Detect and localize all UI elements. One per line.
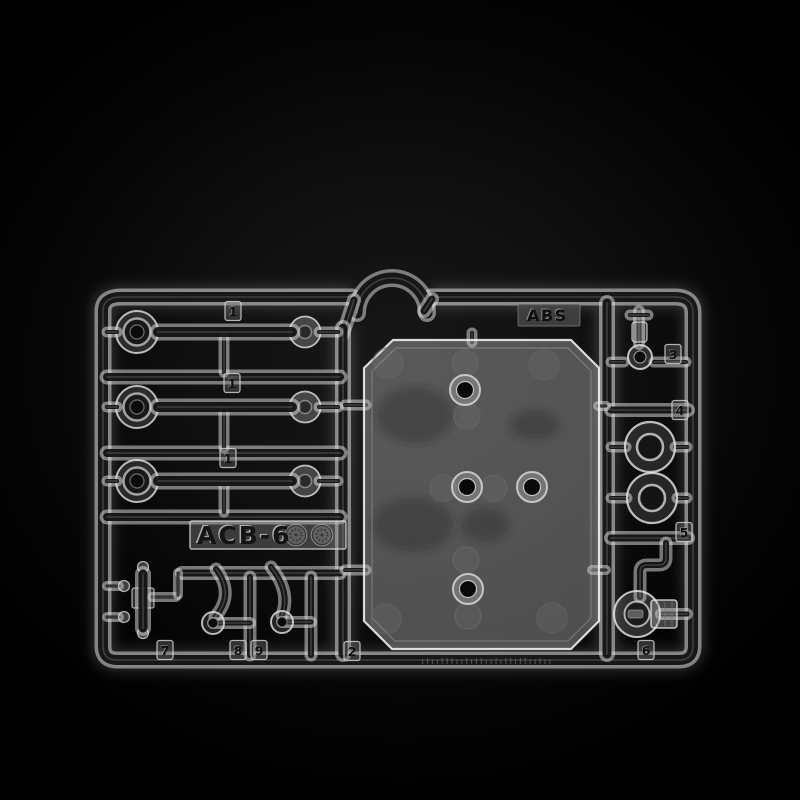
- plate-shallow-recess: [454, 403, 480, 429]
- part-number: 1: [224, 451, 233, 466]
- runner-core: [357, 278, 427, 313]
- part6-cylinder: [651, 600, 677, 628]
- part6-elbow-runner: [640, 543, 666, 597]
- part-number-tab-4: 44: [672, 401, 688, 420]
- plate-corner-recess: [373, 348, 403, 378]
- sprue-photo: 1111112233445566778899 ACB-6 ACB-6 ABS A…: [0, 0, 800, 800]
- plate-hole: [460, 581, 477, 598]
- part6-pin: [628, 610, 643, 618]
- part-9-ring: [271, 611, 293, 633]
- part-number-tab-1: 11: [225, 302, 241, 321]
- smudge: [461, 508, 509, 542]
- plate-shallow-recess: [452, 350, 478, 376]
- part-number: 7: [161, 643, 170, 658]
- arm-socket-hole: [130, 325, 144, 339]
- ring-hole: [208, 618, 218, 628]
- part-6-cylinder-joint: [614, 591, 677, 637]
- plate-hole: [459, 479, 476, 496]
- plate-hole: [457, 382, 474, 399]
- kit-code-text: ACB-6: [197, 521, 292, 550]
- molded-recycle-symbol-center: [295, 534, 298, 537]
- plate-corner-recess: [371, 604, 401, 634]
- part-number-tab-8: 88: [230, 641, 246, 660]
- part-number-tab-9: 99: [251, 641, 267, 660]
- part-number: 8: [234, 643, 243, 658]
- part7-knob: [119, 612, 130, 623]
- sprue-shapes: 1111112233445566778899: [103, 278, 693, 661]
- smudge: [373, 498, 453, 552]
- part3-body: [632, 322, 647, 342]
- arm-socket-hole: [130, 474, 144, 488]
- part-number: 5: [680, 525, 689, 540]
- plate-hole: [524, 479, 541, 496]
- plate-shallow-recess: [453, 547, 479, 573]
- part-number: 1: [228, 376, 237, 391]
- plate-corner-recess: [529, 350, 559, 380]
- part-ring-socket-4: [625, 422, 675, 472]
- ring-inner: [637, 434, 663, 460]
- plate-shallow-recess: [481, 475, 507, 501]
- photo-of-model-kit-runner: 1111112233445566778899 ACB-6 ACB-6 ABS A…: [0, 0, 800, 800]
- arch-clip-part: [357, 278, 427, 313]
- part7-knob: [119, 581, 130, 592]
- part-ring-socket-5: [627, 473, 677, 523]
- part-number-tab-7: 77: [157, 641, 173, 660]
- part3-ring-hole: [634, 351, 646, 363]
- part-number: 2: [348, 644, 357, 659]
- ring-inner: [639, 485, 665, 511]
- part8-curved-arm: [215, 569, 225, 617]
- material-marking: ABS: [527, 306, 568, 325]
- part9-curved-arm: [271, 567, 285, 615]
- arm-socket-hole: [130, 400, 144, 414]
- part-number-tab-5: 55: [676, 523, 692, 542]
- arch-right-link: [424, 299, 432, 311]
- molded-recycle-symbol-center: [321, 534, 324, 537]
- part-number-tab-2: 22: [344, 642, 360, 661]
- base-plate-part: [364, 340, 599, 649]
- ring-hole: [277, 617, 287, 627]
- part-number: 1: [229, 304, 238, 319]
- smudge: [510, 410, 560, 440]
- smudge: [377, 387, 453, 443]
- part-number-tab-1: 11: [224, 374, 240, 393]
- plate-shallow-recess: [455, 603, 481, 629]
- part-number: 9: [255, 643, 264, 658]
- runner-edge-highlight: [640, 543, 666, 597]
- plate-corner-recess: [537, 603, 567, 633]
- part-3-joint: [628, 322, 652, 369]
- part-number-tab-1: 11: [220, 449, 236, 468]
- base-plate: [364, 340, 599, 649]
- part-number: 3: [669, 347, 678, 362]
- illegible-molded-footer-text: ılıılllıılıllıılıllıllıılıı: [421, 657, 553, 666]
- part-number: 6: [642, 643, 651, 658]
- part-number: 4: [676, 403, 685, 418]
- part-number-tab-3: 33: [665, 345, 681, 364]
- part-number-tab-6: 66: [638, 641, 654, 660]
- part-8-ring: [202, 612, 224, 634]
